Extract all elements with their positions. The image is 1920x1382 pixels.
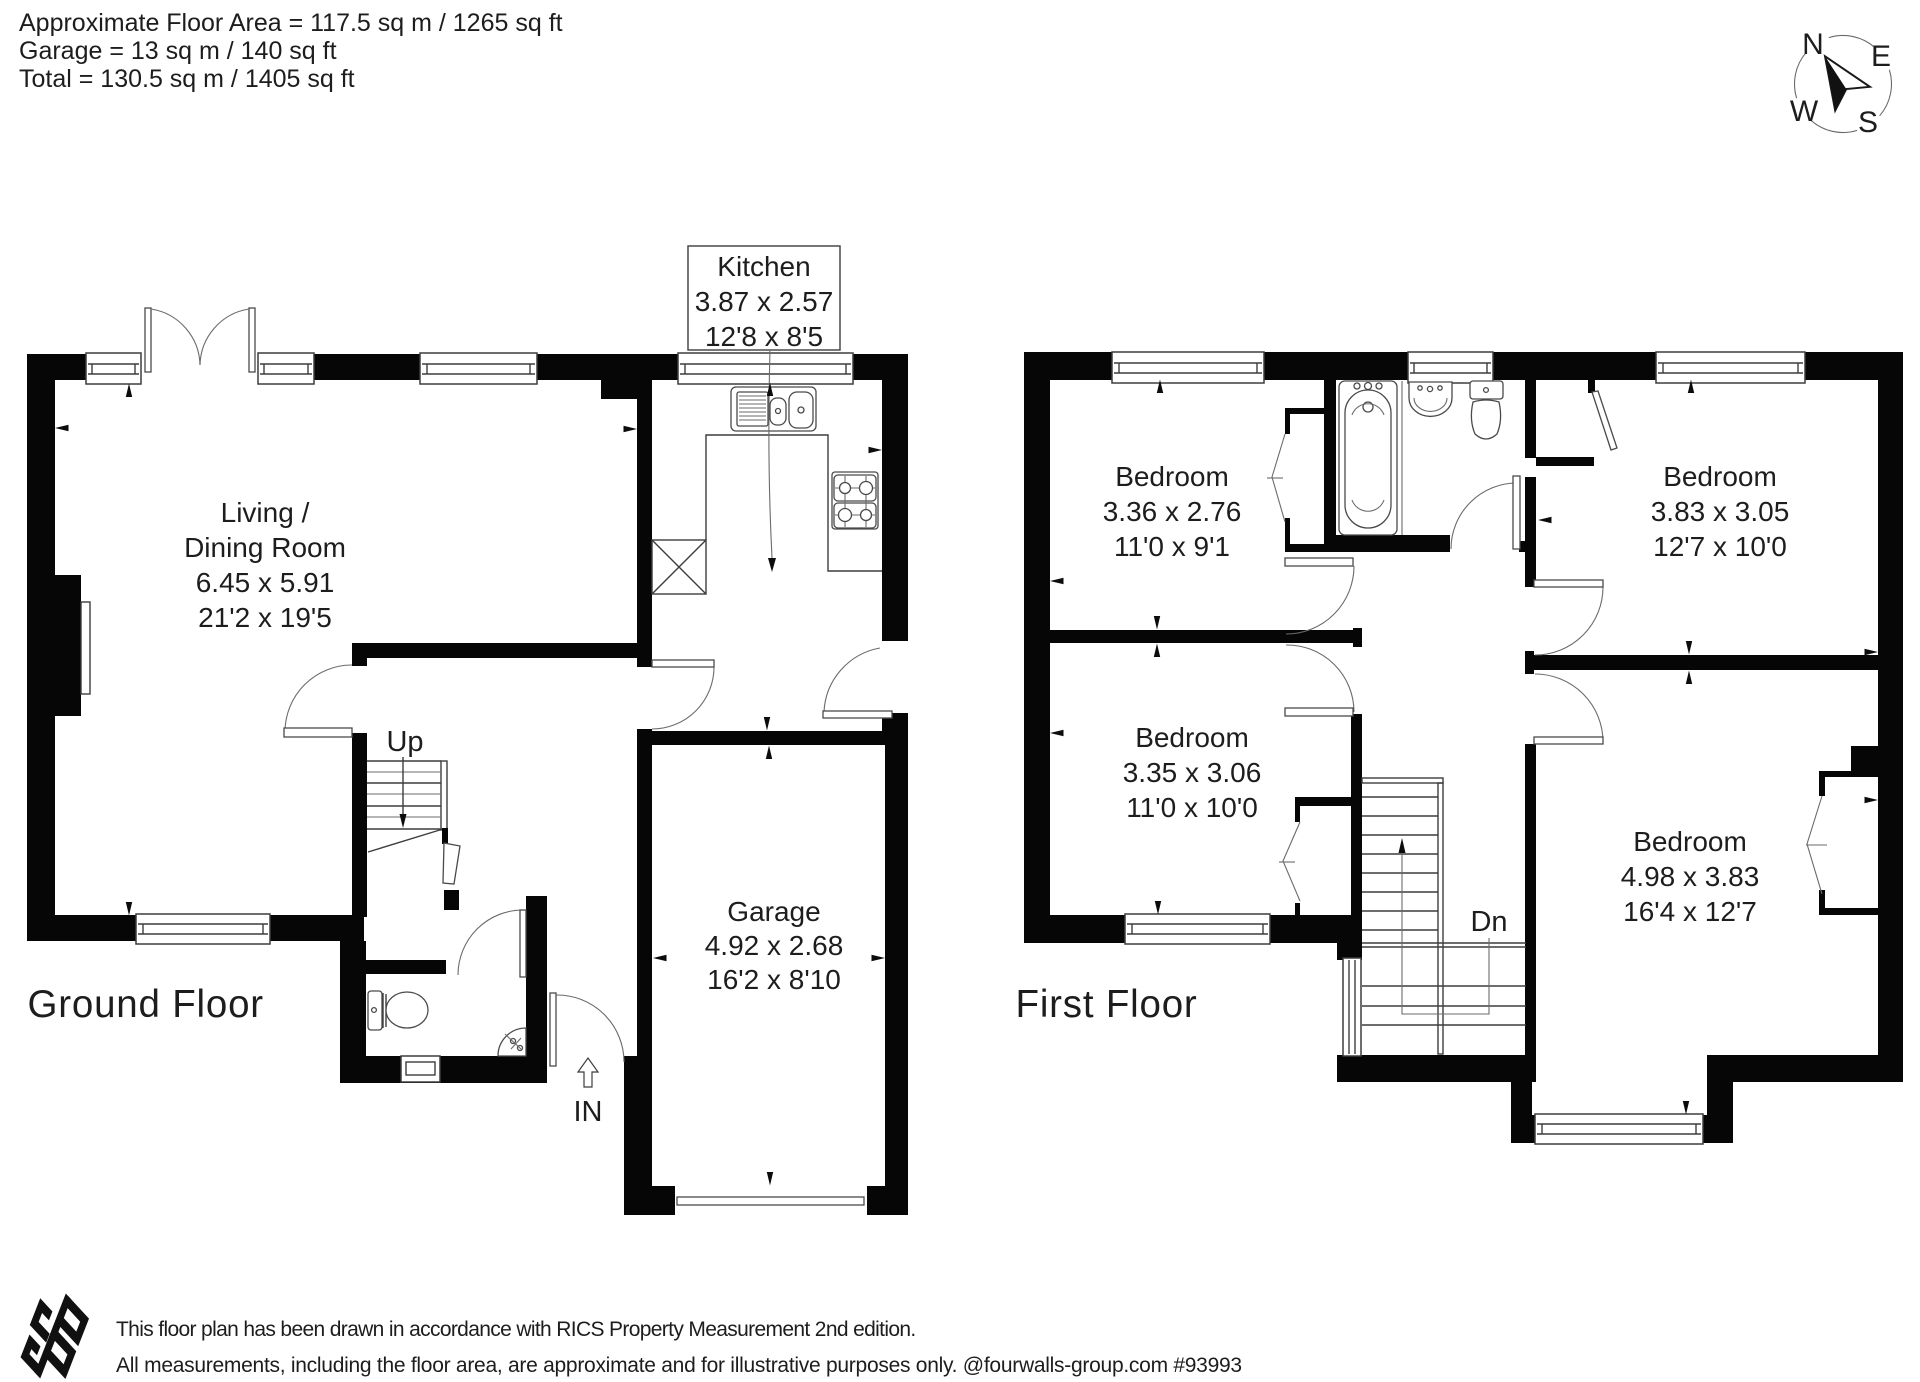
svg-text:All measurements, including th: All measurements, including the floor ar… [116, 1354, 1242, 1377]
svg-text:N: N [1802, 28, 1824, 61]
svg-text:Kitchen: Kitchen [717, 251, 810, 282]
svg-text:Bedroom: Bedroom [1633, 826, 1747, 857]
svg-text:3.83 x 3.05: 3.83 x 3.05 [1651, 496, 1790, 527]
svg-text:16'2 x 8'10: 16'2 x 8'10 [707, 964, 841, 995]
svg-text:Bedroom: Bedroom [1663, 461, 1777, 492]
svg-text:Bedroom: Bedroom [1135, 722, 1249, 753]
svg-text:E: E [1871, 40, 1891, 73]
svg-text:Garage: Garage [727, 896, 820, 927]
svg-text:Dn: Dn [1470, 906, 1507, 938]
svg-text:S: S [1858, 106, 1878, 139]
svg-text:Garage = 13 sq m / 140 sq ft: Garage = 13 sq m / 140 sq ft [19, 37, 337, 65]
svg-text:11'0 x 9'1: 11'0 x 9'1 [1114, 531, 1230, 562]
svg-text:12'8 x 8'5: 12'8 x 8'5 [705, 321, 823, 352]
svg-text:16'4 x 12'7: 16'4 x 12'7 [1623, 896, 1757, 927]
svg-text:3.87 x 2.57: 3.87 x 2.57 [695, 286, 834, 317]
svg-text:3.35 x 3.06: 3.35 x 3.06 [1123, 757, 1262, 788]
svg-text:Dining Room: Dining Room [184, 532, 346, 563]
svg-text:Approximate Floor Area = 117.5: Approximate Floor Area = 117.5 sq m / 12… [19, 9, 563, 37]
svg-text:3.36 x 2.76: 3.36 x 2.76 [1103, 496, 1242, 527]
svg-text:W: W [1790, 95, 1819, 128]
svg-text:Ground Floor: Ground Floor [28, 983, 264, 1026]
svg-text:12'7 x 10'0: 12'7 x 10'0 [1653, 531, 1787, 562]
svg-text:First Floor: First Floor [1016, 983, 1198, 1026]
svg-text:4.98 x 3.83: 4.98 x 3.83 [1621, 861, 1760, 892]
svg-text:4.92 x 2.68: 4.92 x 2.68 [705, 930, 844, 961]
svg-text:11'0 x 10'0: 11'0 x 10'0 [1126, 792, 1258, 823]
svg-text:This floor plan has been drawn: This floor plan has been drawn in accord… [116, 1318, 916, 1341]
svg-text:IN: IN [574, 1096, 603, 1128]
svg-text:Up: Up [386, 726, 423, 758]
svg-text:6.45 x 5.91: 6.45 x 5.91 [196, 567, 335, 598]
svg-text:21'2 x 19'5: 21'2 x 19'5 [198, 602, 332, 633]
svg-text:Bedroom: Bedroom [1115, 461, 1229, 492]
svg-text:Living /: Living / [221, 497, 310, 528]
svg-text:Total = 130.5 sq m / 1405 sq f: Total = 130.5 sq m / 1405 sq ft [19, 65, 355, 93]
